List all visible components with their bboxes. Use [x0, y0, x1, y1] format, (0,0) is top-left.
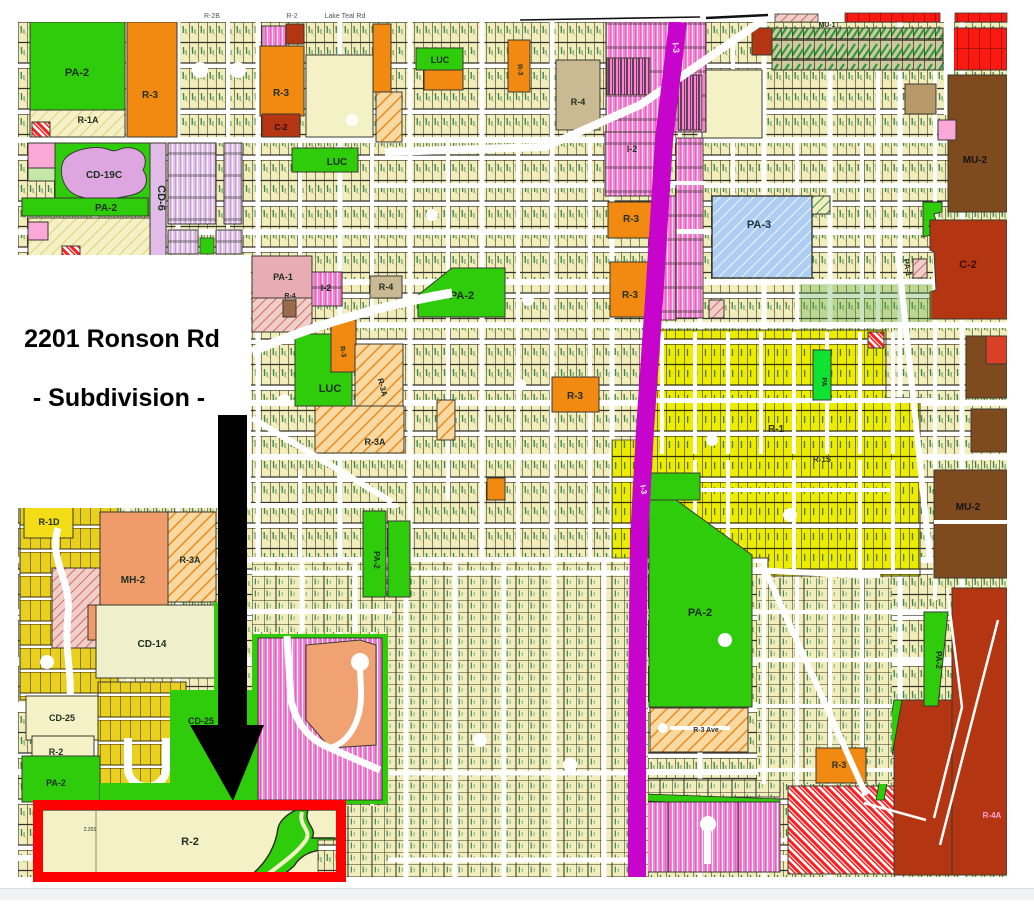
svg-text:Lake Teal Rd: Lake Teal Rd: [325, 13, 366, 20]
svg-text:CD-25: CD-25: [49, 713, 75, 723]
svg-text:R-1A: R-1A: [77, 115, 99, 125]
svg-text:R-3: R-3: [622, 290, 639, 301]
svg-text:I-3: I-3: [671, 42, 682, 53]
svg-text:R-3A: R-3A: [364, 437, 386, 447]
svg-text:R-4A: R-4A: [983, 811, 1002, 820]
svg-text:R-2: R-2: [181, 836, 199, 848]
svg-text:PA-3: PA-3: [747, 219, 771, 231]
svg-text:MH-2: MH-2: [121, 575, 146, 586]
svg-text:R-4: R-4: [379, 282, 394, 292]
svg-text:CD-6: CD-6: [155, 185, 167, 211]
svg-text:R-3 Ave: R-3 Ave: [693, 727, 719, 734]
svg-text:PA-2: PA-2: [46, 778, 66, 788]
svg-text:PA-2: PA-2: [688, 607, 712, 619]
svg-text:PA: PA: [820, 377, 827, 386]
svg-text:PA-1: PA-1: [273, 272, 293, 282]
svg-text:R-3: R-3: [273, 88, 290, 99]
svg-text:C-2: C-2: [275, 123, 288, 132]
svg-text:LUC: LUC: [431, 55, 450, 65]
svg-text:CD-14: CD-14: [138, 639, 167, 650]
svg-text:R-2: R-2: [286, 13, 297, 20]
svg-text:MU-2: MU-2: [963, 155, 988, 166]
svg-text:I-2: I-2: [627, 144, 638, 154]
svg-text:R-1S: R-1S: [813, 455, 832, 464]
svg-text:PA-2: PA-2: [450, 290, 474, 302]
svg-text:R-3: R-3: [142, 90, 159, 101]
svg-text:2.201: 2.201: [84, 827, 97, 833]
svg-text:R-3: R-3: [623, 214, 640, 225]
svg-text:PA-2: PA-2: [372, 551, 381, 569]
svg-text:R-1D: R-1D: [38, 517, 60, 527]
svg-text:R-4: R-4: [284, 293, 295, 300]
svg-text:LUC: LUC: [327, 157, 348, 168]
svg-text:- Subdivision -: - Subdivision -: [33, 384, 205, 412]
svg-text:R-3A: R-3A: [179, 555, 201, 565]
svg-text:CD-25: CD-25: [188, 716, 214, 726]
svg-text:R-4: R-4: [571, 97, 586, 107]
svg-text:PA-2: PA-2: [65, 67, 89, 79]
svg-text:R-2B: R-2B: [204, 13, 220, 20]
svg-text:C-2: C-2: [959, 259, 977, 271]
svg-text:R-3: R-3: [832, 760, 847, 770]
svg-text:2201 Ronson Rd: 2201 Ronson Rd: [24, 325, 220, 353]
svg-text:R-3: R-3: [567, 391, 584, 402]
svg-text:R-1: R-1: [768, 424, 785, 435]
svg-text:CD-19C: CD-19C: [86, 170, 122, 181]
svg-text:R-3: R-3: [516, 64, 524, 76]
svg-text:I-2: I-2: [321, 283, 332, 293]
svg-text:PA-2: PA-2: [934, 651, 943, 669]
svg-text:PA-2: PA-2: [95, 203, 117, 214]
svg-text:LUC: LUC: [319, 383, 342, 395]
svg-text:MU-2: MU-2: [956, 502, 981, 513]
